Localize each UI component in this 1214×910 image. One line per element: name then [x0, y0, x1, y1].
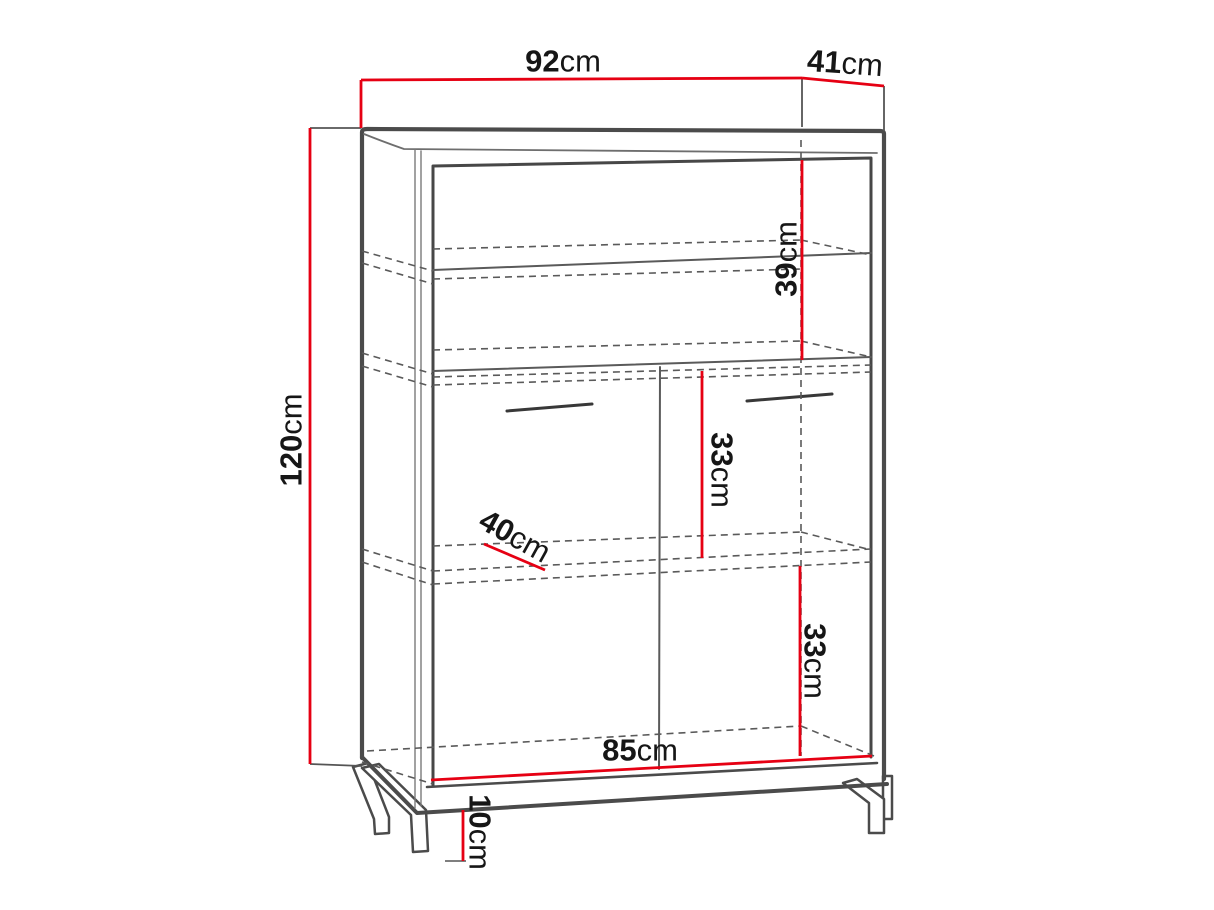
dim-leg-height-label: 10cm — [465, 794, 496, 870]
dim-depth-value: 41 — [806, 43, 843, 80]
door-handles — [507, 394, 832, 411]
extension-lines — [310, 78, 884, 861]
dim-top-section-value: 39 — [769, 262, 804, 296]
dim-middle-section-label: 33cm — [707, 432, 738, 508]
dim-height-value: 120 — [274, 435, 309, 487]
dimension-lines-red — [310, 78, 884, 861]
top-panel-edge — [364, 134, 877, 153]
cabinet-line-drawing — [0, 0, 1214, 910]
right-door-handle — [747, 394, 832, 401]
cabinet-body — [362, 129, 887, 813]
dim-middle-section-value: 33 — [705, 432, 740, 466]
door-divider — [659, 367, 660, 769]
dim-width-label: 92cm — [525, 46, 601, 77]
left-door-handle — [507, 404, 592, 411]
dim-inner-width-label: 85cm — [602, 735, 678, 766]
shelf-b-front — [433, 357, 871, 371]
dim-leg-height-value: 10 — [463, 794, 498, 828]
dimension-diagram: 92cm 41cm 120cm 39cm 33cm 40cm 33cm 85cm… — [0, 0, 1214, 910]
dim-top-section-label: 39cm — [771, 221, 802, 297]
shelf-a-front — [433, 253, 871, 270]
dim-inner-width-value: 85 — [602, 733, 636, 768]
dim-width-value: 92 — [525, 44, 559, 79]
dim-bottom-section-value: 33 — [798, 623, 833, 657]
dim-height-label: 120cm — [276, 393, 307, 486]
dim-depth-label: 41cm — [806, 45, 884, 81]
dim-bottom-section-label: 33cm — [800, 623, 831, 699]
